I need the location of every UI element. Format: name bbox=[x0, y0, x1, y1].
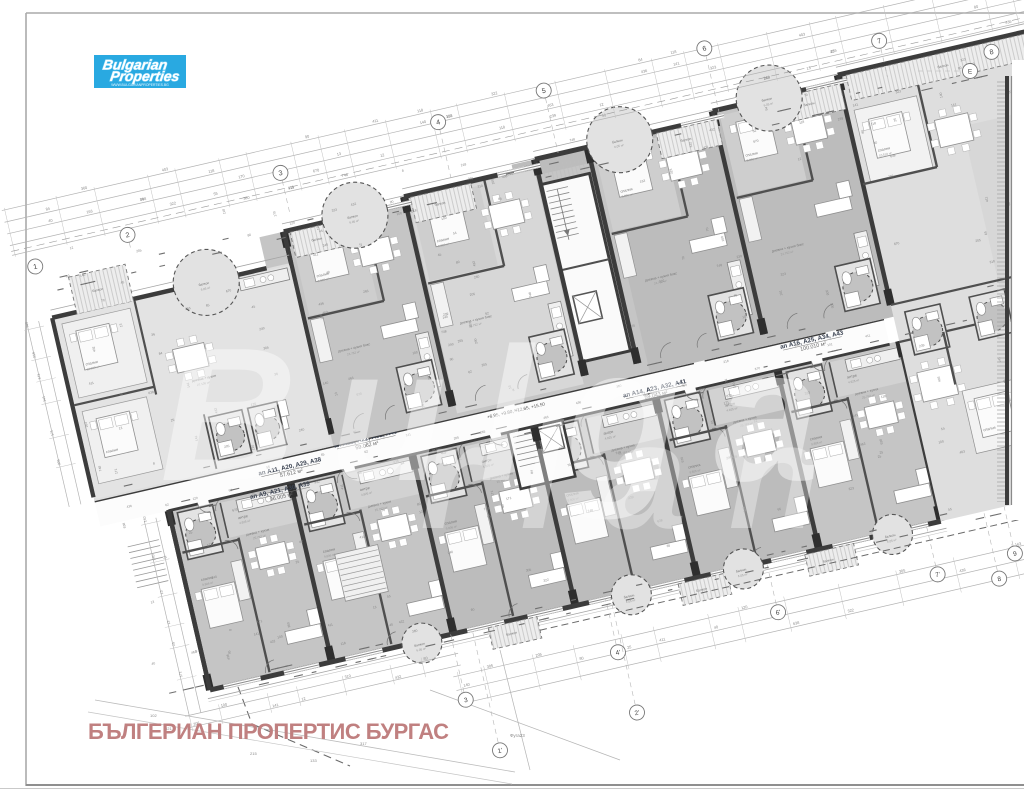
svg-text:Properties: Properties bbox=[109, 68, 181, 84]
svg-text:102: 102 bbox=[150, 713, 157, 718]
svg-text:БЪЛГЕРИАН ПРОПЕРТИС БУРГАС: БЪЛГЕРИАН ПРОПЕРТИС БУРГАС bbox=[88, 719, 449, 744]
svg-text:133: 133 bbox=[310, 758, 317, 763]
svg-text:Bulga: Bulga bbox=[160, 309, 820, 521]
svg-text:WWW.BULGARIANPROPERTIES.BG: WWW.BULGARIANPROPERTIES.BG bbox=[111, 83, 169, 87]
svg-text:Фуга23: Фуга23 bbox=[510, 733, 525, 738]
svg-text:215: 215 bbox=[250, 751, 257, 756]
svg-text:Е: Е bbox=[968, 68, 973, 75]
